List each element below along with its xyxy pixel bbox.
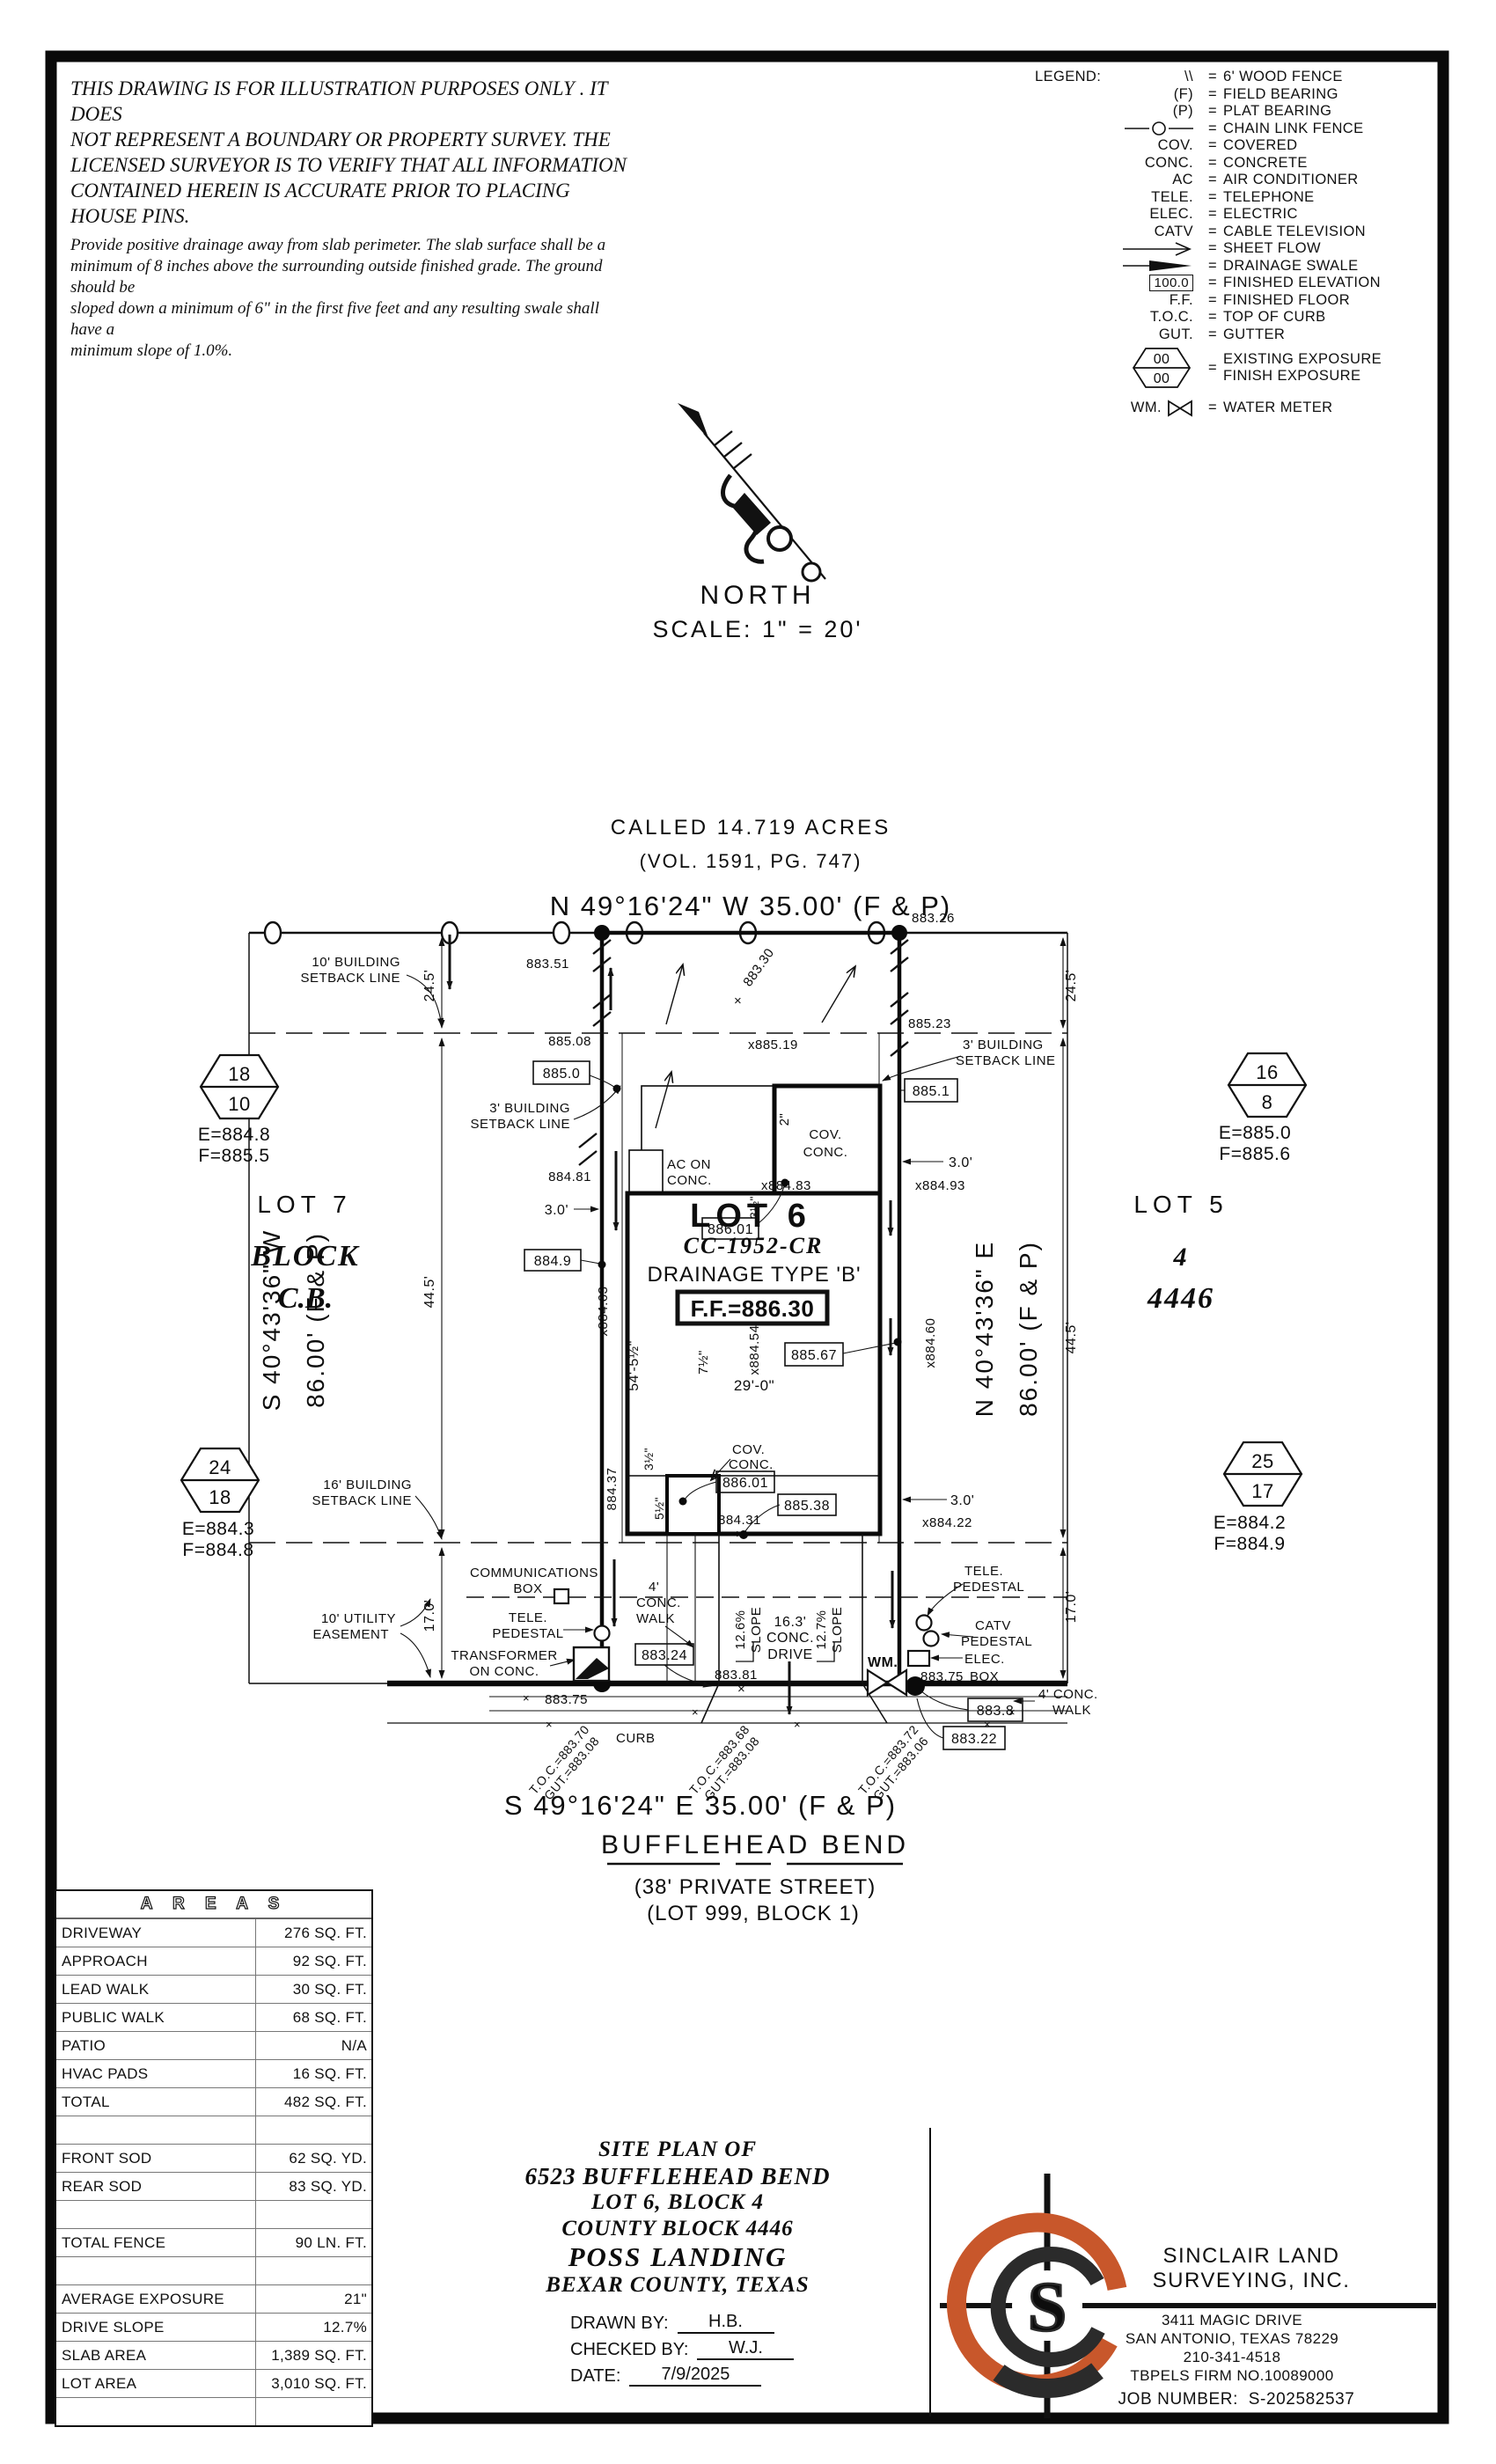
table-row: DRIVE SLOPE12.7% — [56, 2314, 371, 2342]
table-row: LOT AREA3,010 SQ. FT. — [56, 2370, 371, 2398]
walk-left-a: 4' — [649, 1580, 659, 1595]
el-885-1: 885.1 — [913, 1084, 950, 1099]
setback16-l1: 16' BUILDING — [323, 1478, 412, 1492]
svg-text:×: × — [546, 1718, 553, 1731]
company-city: SAN ANTONIO, TEXAS 78229 — [1087, 2329, 1377, 2348]
el-883-30: 883.30 — [740, 945, 777, 989]
el-885-67: 885.67 — [791, 1348, 837, 1363]
water-meter-legend-icon: WM. — [1109, 400, 1202, 417]
hex-sw-b: 18 — [209, 1486, 231, 1508]
drawn-by-value: H.B. — [678, 2312, 774, 2334]
date-value: 7/9/2025 — [629, 2365, 761, 2387]
north-label: NORTH — [700, 581, 815, 610]
easement-l2: EASEMENT — [312, 1627, 389, 1642]
el-883-81-x: × — [737, 1682, 745, 1697]
bearing-bottom: S 49°16'24" E 35.00' (F & P) — [504, 1790, 897, 1821]
tele-right-2: PEDESTAL — [953, 1580, 1024, 1595]
company-firm: TBPELS FIRM NO.10089000 — [1087, 2366, 1377, 2385]
table-row: REAR SOD83 SQ. YD. — [56, 2173, 371, 2201]
hex-nw-b: 10 — [228, 1093, 250, 1115]
catv-pedestal-icon — [924, 1632, 939, 1646]
bearing-east-1: N 40°43'36" E — [971, 1241, 998, 1417]
curb-label: CURB — [616, 1731, 656, 1746]
table-row: LEAD WALK30 SQ. FT. — [56, 1976, 371, 2004]
title-line: BEXAR COUNTY, TEXAS — [493, 2272, 862, 2299]
table-row: TOTAL482 SQ. FT. — [56, 2088, 371, 2116]
svg-text:×: × — [692, 1705, 699, 1719]
legend-title: LEGEND: — [1035, 69, 1109, 85]
el-884-60: x884.60 — [923, 1318, 938, 1368]
dim-44-5-left: 44.5' — [422, 1276, 437, 1309]
catv-1: CATV — [975, 1618, 1011, 1633]
cb-label: C.B. — [278, 1282, 333, 1315]
svg-text:×: × — [523, 1691, 530, 1705]
bearing-top: N 49°16'24" W 35.00' (F & P) — [550, 891, 952, 921]
drive-and-walks — [387, 1534, 1067, 1723]
dim-29: 29'-0" — [734, 1377, 774, 1394]
lot5-label: LOT 5 — [1133, 1191, 1228, 1218]
dim-3-left: 3.0' — [545, 1203, 568, 1218]
el-885-08: 885.08 — [548, 1034, 591, 1049]
el-884-81: 884.81 — [548, 1170, 591, 1184]
table-row: AVERAGE EXPOSURE21" — [56, 2285, 371, 2314]
elec-label: ELEC. — [964, 1652, 1005, 1667]
drainage-note-line: sloped down a minimum of 6" in the first… — [70, 298, 634, 341]
dim-7h: 7½" — [696, 1350, 711, 1375]
table-row — [56, 2116, 371, 2145]
svg-text:00: 00 — [1154, 352, 1170, 367]
el-884-31-x: × — [736, 1527, 744, 1542]
table-row: FRONT SOD62 SQ. YD. — [56, 2145, 371, 2173]
communications-box-icon — [554, 1589, 568, 1603]
el-883-22: 883.22 — [951, 1732, 997, 1747]
dim-17-right: 17.0' — [1064, 1591, 1079, 1624]
table-row: PATION/A — [56, 2032, 371, 2060]
tele-right-1: TELE. — [964, 1564, 1003, 1579]
dim-3h-front: 3½" — [642, 1448, 656, 1470]
dim-5h-front: 5½" — [652, 1497, 666, 1520]
el-884-63: x884.63 — [596, 1287, 611, 1337]
el-885-23: 885.23 — [908, 1016, 951, 1031]
chain-link-fence-icon — [1109, 121, 1202, 136]
drainage-note-line: minimum of 8 inches above the surroundin… — [70, 256, 634, 298]
checked-by-value: W.J. — [697, 2338, 794, 2360]
transformer-2: ON CONC. — [470, 1664, 539, 1679]
dim-54: 54'-5½" — [627, 1340, 642, 1391]
hex-se-a: 25 — [1251, 1450, 1273, 1472]
slope-2-word: SLOPE — [830, 1607, 845, 1654]
block-label: BLOCK — [250, 1240, 360, 1272]
title-block-form: DRAWN BY:H.B. CHECKED BY:W.J. DATE:7/9/2… — [570, 2307, 861, 2387]
el-885-0: 885.0 — [543, 1067, 581, 1082]
drainage-note-line: minimum slope of 1.0%. — [70, 341, 634, 362]
title-line: 6523 BUFFLEHEAD BEND — [493, 2163, 862, 2189]
el-884-9: 884.9 — [534, 1254, 572, 1269]
walk-left-b: CONC. — [636, 1595, 681, 1610]
street-sub1: (38' PRIVATE STREET) — [634, 1875, 876, 1899]
hex-nw-a: 18 — [228, 1063, 250, 1085]
hex-sw-f: F=884.8 — [182, 1540, 253, 1560]
svg-text:×: × — [794, 1718, 801, 1731]
el-884-22: x884.22 — [922, 1515, 972, 1530]
elec-box-word: BOX — [970, 1669, 999, 1684]
water-meter-icon — [868, 1670, 906, 1695]
title-line: POSS LANDING — [493, 2242, 862, 2272]
setback3-right-l2: SETBACK LINE — [956, 1053, 1056, 1068]
lot6-title: LOT 6 — [690, 1198, 811, 1235]
table-row — [56, 2257, 371, 2285]
hex-se-f: F=884.9 — [1214, 1534, 1285, 1554]
drainage-note-line: Provide positive drainage away from slab… — [70, 235, 634, 256]
comm-1: COMMUNICATIONS — [470, 1566, 598, 1580]
wood-fence-symbol: \\ — [1109, 69, 1202, 85]
wm-label: WM. — [868, 1655, 898, 1670]
street-sub2: (LOT 999, BLOCK 1) — [647, 1902, 860, 1925]
dim-3-right-rear: 3.0' — [949, 1155, 972, 1170]
title-line: COUNTY BLOCK 4446 — [493, 2216, 862, 2242]
walk-left-c: WALK — [636, 1611, 675, 1626]
vol-pg: (VOL. 1591, PG. 747) — [640, 850, 862, 872]
el-885-38: 885.38 — [784, 1499, 830, 1514]
el-883-30-x: × — [734, 994, 742, 1008]
setback3-left-l1: 3' BUILDING — [489, 1101, 570, 1116]
hex-nw-f: F=885.5 — [198, 1146, 269, 1166]
setback10-l2: SETBACK LINE — [300, 971, 400, 986]
tele-left-2: PEDESTAL — [492, 1626, 563, 1641]
called-acres: CALLED 14.719 ACRES — [611, 816, 891, 840]
hex-ne-b: 8 — [1262, 1091, 1273, 1113]
dim-44-5-right: 44.5' — [1064, 1322, 1079, 1354]
table-row: DRIVEWAY276 SQ. FT. — [56, 1919, 371, 1947]
scale-label: SCALE: 1" = 20' — [652, 616, 862, 642]
hex-ne-a: 16 — [1256, 1061, 1278, 1083]
el-884-31: 884.31 — [718, 1513, 761, 1528]
hex-se-b: 17 — [1251, 1480, 1273, 1502]
table-row: APPROACH92 SQ. FT. — [56, 1947, 371, 1976]
logo-monogram: S — [1028, 2269, 1067, 2346]
tele-pedestal-right-icon — [917, 1616, 932, 1631]
drawn-by-label: DRAWN BY: — [570, 2314, 669, 2334]
street-name: BUFFLEHEAD BEND — [601, 1830, 909, 1859]
title-block: SITE PLAN OF 6523 BUFFLEHEAD BEND LOT 6,… — [493, 2137, 862, 2299]
table-row — [56, 2201, 371, 2229]
disclaimer-line: CONTAINED HEREIN IS ACCURATE PRIOR TO PL… — [70, 178, 634, 229]
dim-17-left: 17.0' — [422, 1600, 437, 1632]
drive-3: DRIVE — [767, 1647, 812, 1662]
dim-24-5-left: 24.5' — [422, 970, 437, 1002]
finished-elevation-symbol: 100.0 — [1109, 275, 1202, 291]
survey-sheet: NORTH SCALE: 1" = 20' — [0, 0, 1496, 2464]
hex-sw-e: E=884.3 — [182, 1519, 254, 1539]
cov-rear-2: CONC. — [803, 1145, 848, 1160]
setback3-right-l1: 3' BUILDING — [963, 1038, 1044, 1052]
elec-box-icon — [908, 1651, 929, 1666]
catv-2: PEDESTAL — [961, 1634, 1032, 1649]
setback16-l2: SETBACK LINE — [312, 1493, 412, 1508]
title-line: SITE PLAN OF — [493, 2137, 862, 2163]
disclaimer-line: THIS DRAWING IS FOR ILLUSTRATION PURPOSE… — [70, 76, 634, 127]
el-883-75-right: 883.75 — [920, 1669, 964, 1684]
el-884-54: x884.54 — [747, 1325, 762, 1375]
plat-bearing-symbol: (P) — [1109, 103, 1202, 120]
el-884-83: x884.83 — [761, 1178, 811, 1193]
hex-ne-f: F=885.6 — [1219, 1144, 1290, 1164]
easement-l1: 10' UTILITY — [321, 1611, 396, 1626]
walk-right-1: 4' CONC. — [1038, 1687, 1098, 1702]
svg-text:×: × — [984, 1718, 991, 1731]
legend: LEGEND: \\ = 6' WOOD FENCE (F)=FIELD BEA… — [1035, 69, 1422, 417]
svg-text:×: × — [1008, 1705, 1016, 1719]
field-bearing-symbol: (F) — [1109, 86, 1202, 103]
ac-on-2: CONC. — [667, 1173, 712, 1188]
job-number: JOB NUMBER: S-202582537 — [1096, 2390, 1377, 2409]
company-name: SINCLAIR LAND SURVEYING, INC. — [1146, 2244, 1357, 2293]
el-883-26: 883.26 — [912, 911, 955, 926]
disclaimer-line: NOT REPRESENT A BOUNDARY OR PROPERTY SUR… — [70, 127, 634, 152]
cov-front-2: CONC. — [729, 1457, 774, 1472]
setback3-left-l2: SETBACK LINE — [470, 1117, 570, 1132]
cov-front-1: COV. — [732, 1442, 765, 1457]
hex-ne-e: E=885.0 — [1219, 1123, 1291, 1143]
company-phone: 210-341-4518 — [1087, 2348, 1377, 2366]
drainage-type: DRAINAGE TYPE 'B' — [647, 1263, 861, 1287]
drive-1: 16.3' — [774, 1615, 807, 1630]
drive-2: CONC. — [766, 1631, 814, 1646]
lot7-label: LOT 7 — [257, 1191, 351, 1218]
el-883-81: 883.81 — [715, 1668, 758, 1683]
dim-3-right-front: 3.0' — [950, 1493, 974, 1508]
date-label: DATE: — [570, 2366, 620, 2387]
drainage-swale-icon — [1109, 258, 1202, 274]
checked-by-label: CHECKED BY: — [570, 2340, 688, 2360]
tele-left-1: TELE. — [509, 1610, 547, 1625]
cov-rear-1: COV. — [809, 1127, 841, 1142]
el-883-75-left: 883.75 — [545, 1692, 588, 1707]
table-row — [56, 2398, 371, 2425]
el-884-93: x884.93 — [915, 1178, 965, 1193]
areas-table: A R E A S DRIVEWAY276 SQ. FT. APPROACH92… — [55, 1889, 373, 2427]
plat-ref: CC-1952-CR — [684, 1233, 824, 1258]
dim-2in: 2" — [777, 1113, 792, 1126]
dim-24-5-right: 24.5' — [1064, 970, 1079, 1002]
exposure-hexagon-icon: 00 00 — [1109, 344, 1202, 392]
tele-pedestal-icon — [595, 1626, 610, 1641]
north-arrow-icon — [678, 403, 825, 581]
title-line: LOT 6, BLOCK 4 — [493, 2189, 862, 2216]
el-884-37: 884.37 — [605, 1468, 620, 1511]
disclaimer-line: LICENSED SURVEYOR IS TO VERIFY THAT ALL … — [70, 152, 634, 178]
block4-label: 4 — [1173, 1243, 1187, 1272]
table-row: HVAC PADS16 SQ. FT. — [56, 2060, 371, 2088]
table-row: TOTAL FENCE90 LN. FT. — [56, 2229, 371, 2257]
el-883-24: 883.24 — [642, 1648, 687, 1663]
walk-right-2: WALK — [1052, 1703, 1091, 1718]
el-885-19: x885.19 — [748, 1038, 798, 1052]
svg-text:00: 00 — [1154, 371, 1170, 386]
hex-nw-e: E=884.8 — [198, 1125, 270, 1145]
slope-1-pct: 12.6% — [733, 1610, 748, 1649]
sheet-flow-icon — [1109, 241, 1202, 257]
table-row: SLAB AREA1,389 SQ. FT. — [56, 2342, 371, 2370]
transformer-1: TRANSFORMER — [451, 1648, 557, 1663]
ac-on-1: AC ON — [667, 1157, 711, 1172]
hex-se-e: E=884.2 — [1214, 1513, 1286, 1533]
slope-1-word: SLOPE — [749, 1607, 764, 1654]
bearing-east-2: 86.00' (F & P) — [1015, 1241, 1042, 1417]
el-886-01-front: 886.01 — [722, 1476, 768, 1491]
comm-2: BOX — [513, 1581, 542, 1596]
cb4446-label: 4446 — [1147, 1282, 1214, 1315]
setback10-l1: 10' BUILDING — [312, 955, 400, 970]
slope-2-pct: 12.7% — [814, 1610, 829, 1649]
disclaimer-note: THIS DRAWING IS FOR ILLUSTRATION PURPOSE… — [70, 76, 634, 362]
company-street: 3411 MAGIC DRIVE — [1087, 2311, 1377, 2329]
table-row: PUBLIC WALK68 SQ. FT. — [56, 2004, 371, 2032]
hex-sw-a: 24 — [209, 1456, 231, 1478]
el-883-51: 883.51 — [526, 957, 569, 972]
areas-table-title: A R E A S — [56, 1891, 371, 1919]
company-address: 3411 MAGIC DRIVE SAN ANTONIO, TEXAS 7822… — [1087, 2311, 1377, 2385]
finished-floor: F.F.=886.30 — [691, 1295, 815, 1322]
